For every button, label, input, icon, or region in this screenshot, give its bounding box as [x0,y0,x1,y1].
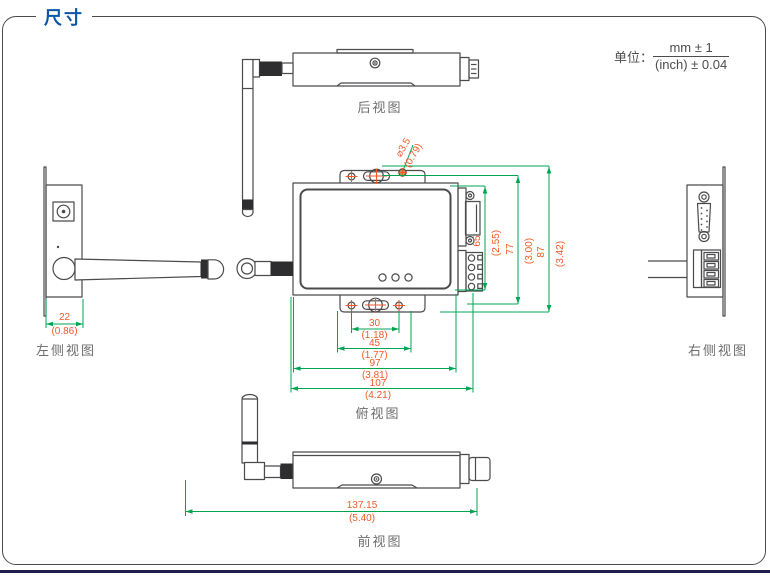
dim-107-inch: (4.21) [333,390,423,401]
left-view-label: 左侧视图 [28,340,104,359]
left-view-antenna [53,258,224,281]
dim-137-inch: (5.40) [317,513,407,524]
dim-87-mm: 87 [536,230,548,274]
front-antenna [242,395,293,480]
dim-87-inch: (3.42) [555,232,567,276]
dimension-drawing-page: 尺寸 单位： mm ± 1 (inch) ± 0.04 [0,0,770,577]
rear-view-label: 后视图 [340,97,420,116]
db9-connector-side-view [698,192,711,242]
terminal-block-side-view [694,250,721,288]
top-view-antenna [237,259,293,279]
dim-22-mm: 22 [40,312,89,323]
dim-137-mm: 137.15 [317,500,407,511]
right-view-label: 右侧视图 [680,340,756,359]
drawing-canvas [0,0,770,577]
right-side-view [648,167,725,316]
left-side-view [44,167,224,316]
top-view [237,169,483,312]
dim-30-mm: 30 [350,318,399,329]
dim-45-mm: 45 [340,338,409,349]
dim-77-inch: (3.00) [524,229,536,273]
dim-77-mm: 77 [505,227,517,271]
top-view-label: 俯视图 [338,403,418,422]
dim-22-inch: (0.86) [40,326,89,337]
rear-antenna [242,60,293,217]
dim-107-mm: 107 [333,378,423,389]
front-view-label: 前视图 [340,531,420,550]
dim-65-mm: 65 [472,219,484,263]
dim-97-mm: 97 [330,358,420,369]
rear-view [242,50,479,217]
dim-65-inch: (2.55) [491,221,503,265]
